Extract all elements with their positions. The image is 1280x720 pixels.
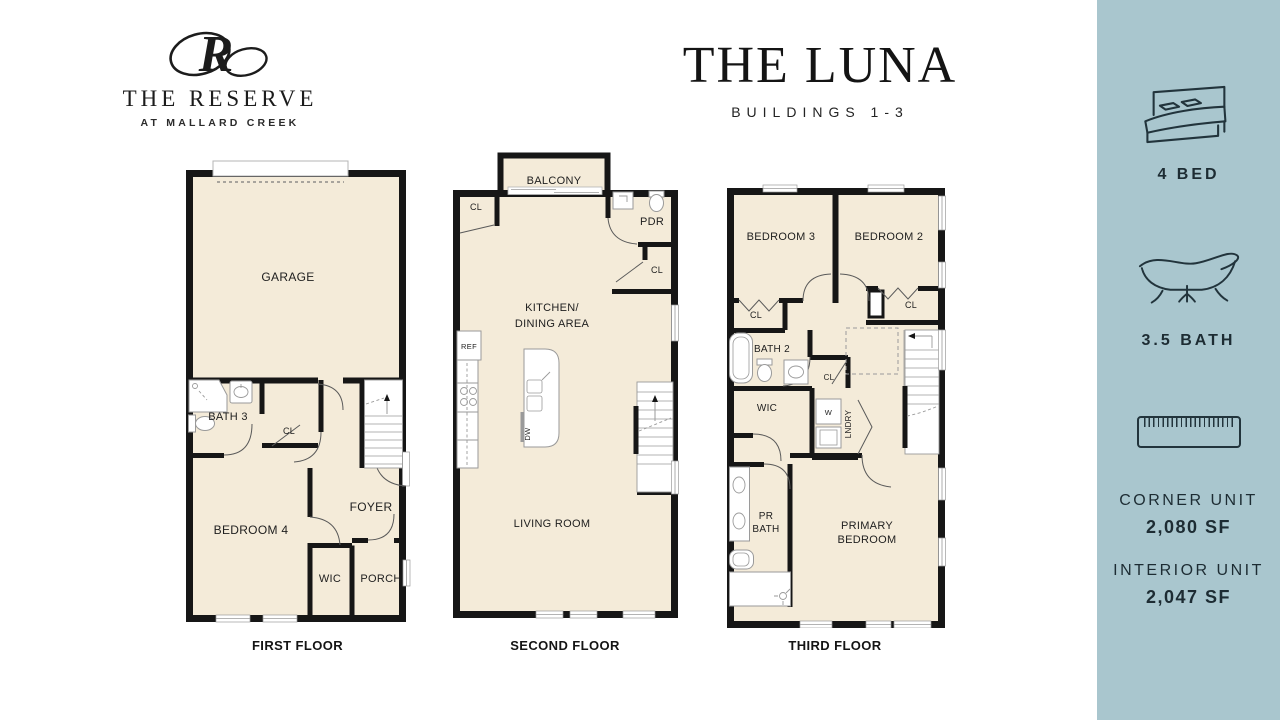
third-floor-label: THIRD FLOOR bbox=[715, 638, 955, 653]
room-label-wic: WIC bbox=[319, 573, 341, 585]
room-label-cl: CL bbox=[283, 426, 295, 436]
bed-icon bbox=[1137, 76, 1241, 152]
brand-name: THE RESERVE bbox=[105, 86, 335, 112]
room-label-garage: GARAGE bbox=[261, 270, 314, 284]
room-label-primary-1: PRIMARY bbox=[841, 520, 893, 532]
third-floor-plan: BEDROOM 3 BEDROOM 2 CL CL BATH 2 CL WIC … bbox=[715, 175, 955, 653]
room-label-ref: REF bbox=[461, 342, 477, 351]
room-label-bedroom3: BEDROOM 3 bbox=[747, 231, 816, 243]
page-title: THE LUNA bbox=[630, 36, 1010, 95]
first-floor-plan: GARAGE BATH 3 CL BEDROOM 4 FOYER WIC POR… bbox=[175, 150, 420, 653]
reserve-monogram-icon: R bbox=[164, 22, 276, 84]
room-label-primary-2: BEDROOM bbox=[838, 534, 897, 546]
ruler-icon bbox=[1137, 416, 1241, 448]
room-label-prbath-1: PR bbox=[759, 511, 774, 522]
room-label-foyer: FOYER bbox=[350, 500, 393, 514]
brand-logo: R THE RESERVE AT MALLARD CREEK bbox=[105, 22, 335, 129]
corner-unit-size: 2,080 SF bbox=[1146, 517, 1231, 538]
second-floor-label: SECOND FLOOR bbox=[440, 638, 690, 653]
stairs-down bbox=[903, 330, 940, 454]
bed-count: 4 BED bbox=[1157, 166, 1219, 184]
room-label-cl-mid: CL bbox=[824, 373, 835, 382]
room-label-kitchen-1: KITCHEN/ bbox=[525, 302, 579, 314]
third-floor-drawing: BEDROOM 3 BEDROOM 2 CL CL BATH 2 CL WIC … bbox=[715, 175, 955, 628]
room-label-bath2: BATH 2 bbox=[754, 344, 790, 355]
room-label-living: LIVING ROOM bbox=[514, 518, 591, 530]
page-subtitle: BUILDINGS 1-3 bbox=[630, 104, 1010, 120]
first-floor-label: FIRST FLOOR bbox=[175, 638, 420, 653]
room-label-cl-left: CL bbox=[470, 202, 482, 212]
room-label-washer: W bbox=[825, 408, 833, 417]
room-label-pdr: PDR bbox=[640, 216, 664, 228]
room-label-bedroom4: BEDROOM 4 bbox=[214, 523, 289, 537]
room-label-cl-right: CL bbox=[651, 265, 663, 275]
room-label-dw: DW bbox=[523, 427, 532, 441]
room-label-lndry: LNDRY bbox=[844, 409, 853, 438]
monogram-letter: R bbox=[198, 26, 234, 83]
second-floor-plan: BALCONY CL PDR CL KITCHEN/ DINING AREA R… bbox=[440, 145, 690, 653]
room-label-cl-right: CL bbox=[905, 300, 917, 310]
room-label-cl-left: CL bbox=[750, 310, 762, 320]
room-label-bath3: BATH 3 bbox=[208, 411, 248, 423]
plan-header: THE LUNA BUILDINGS 1-3 bbox=[630, 36, 1010, 120]
second-floor-drawing: BALCONY CL PDR CL KITCHEN/ DINING AREA R… bbox=[440, 145, 690, 628]
stairs-up bbox=[634, 382, 674, 492]
corner-unit-label: CORNER UNIT bbox=[1119, 492, 1258, 510]
garage-door bbox=[213, 161, 348, 176]
bathtub-icon bbox=[1135, 242, 1243, 314]
room-label-wic: WIC bbox=[757, 403, 777, 414]
room-label-balcony: BALCONY bbox=[527, 175, 582, 187]
bath-count: 3.5 BATH bbox=[1142, 332, 1236, 350]
brand-tagline: AT MALLARD CREEK bbox=[105, 117, 335, 129]
room-label-prbath-2: BATH bbox=[752, 524, 779, 535]
laundry-fixtures bbox=[816, 399, 841, 448]
interior-unit-size: 2,047 SF bbox=[1146, 587, 1231, 608]
room-label-kitchen-2: DINING AREA bbox=[515, 318, 590, 330]
unit-info-sidebar: 4 BED 3.5 BATH CORNER UNIT 2,080 SF INTE… bbox=[1097, 0, 1280, 720]
stairs-up bbox=[365, 380, 403, 468]
room-label-bedroom2: BEDROOM 2 bbox=[855, 231, 924, 243]
room-label-porch: PORCH bbox=[360, 573, 401, 585]
first-floor-drawing: GARAGE BATH 3 CL BEDROOM 4 FOYER WIC POR… bbox=[175, 150, 420, 628]
interior-unit-label: INTERIOR UNIT bbox=[1113, 562, 1264, 580]
